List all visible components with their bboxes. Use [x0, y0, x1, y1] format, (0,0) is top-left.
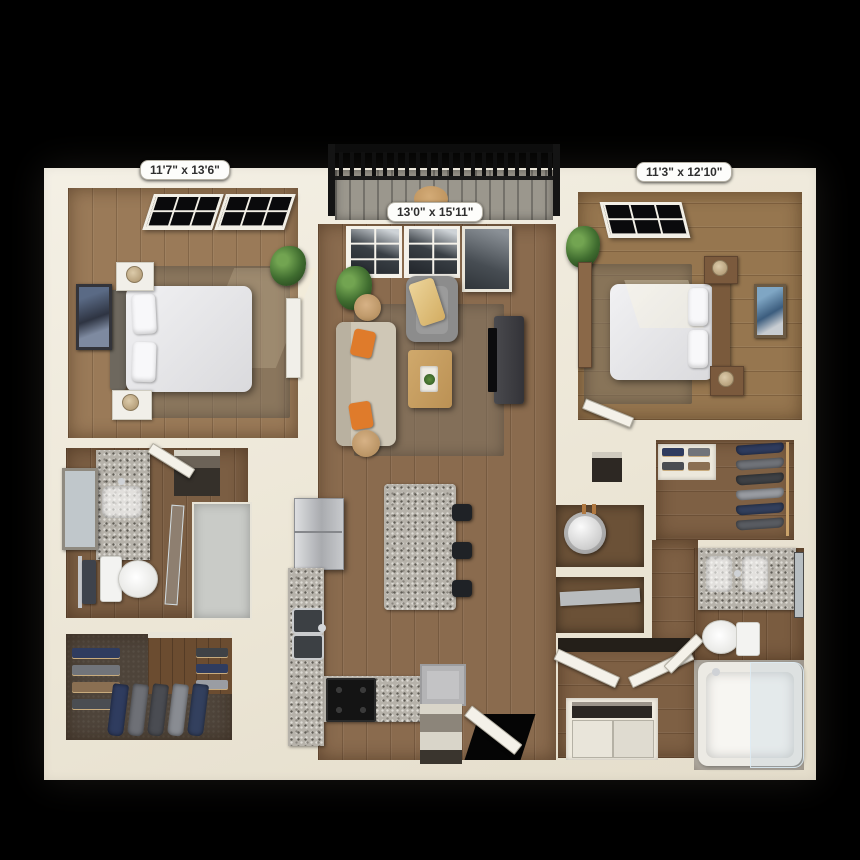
- folded-clothes: [72, 665, 120, 675]
- folded-clothes: [196, 648, 228, 657]
- sink-basin: [292, 634, 324, 660]
- vanity-mirror: [794, 552, 804, 618]
- sink-basin: [706, 556, 732, 592]
- centerpiece-plant: [424, 374, 435, 385]
- kitchen-island: [384, 484, 456, 610]
- dimension-label-living-room: 13'0" x 15'11": [387, 202, 483, 222]
- refrigerator-door-seam: [294, 531, 342, 533]
- side-table: [354, 294, 381, 321]
- sliding-door-panel: [613, 720, 654, 758]
- bed-right-pillow-1: [688, 288, 708, 326]
- living-window-2: [404, 226, 460, 278]
- pantry-door: [420, 664, 466, 706]
- folded-clothes: [72, 648, 120, 658]
- tub-glass-panel: [750, 662, 804, 768]
- faucet: [118, 478, 125, 485]
- bed-left-pillow-1: [131, 293, 157, 334]
- folded-clothes: [662, 448, 684, 456]
- throw-pillow-orange: [348, 400, 374, 430]
- balcony-balusters: [328, 152, 560, 178]
- television: [488, 328, 497, 392]
- dimension-label-bedroom-right: 11'3" x 12'10": [636, 162, 732, 182]
- hallway-connector-floor: [652, 540, 698, 646]
- bar-stool: [452, 542, 472, 559]
- folded-clothes: [196, 664, 228, 673]
- balcony-post-left: [328, 144, 335, 216]
- bed-left-pillow-2: [131, 342, 156, 383]
- towel: [82, 560, 96, 604]
- side-table: [352, 430, 380, 457]
- tv-console: [494, 316, 524, 404]
- water-heater: [564, 512, 606, 554]
- dresser: [286, 298, 301, 378]
- balcony-post-right: [553, 144, 560, 216]
- water-heater-pipe: [592, 504, 596, 514]
- table-lamp: [718, 371, 734, 387]
- bed-right-pillow-2: [688, 330, 708, 368]
- pantry-shelves: [420, 704, 462, 764]
- sliding-door-panel: [572, 720, 613, 758]
- toilet-bowl: [118, 560, 158, 598]
- bar-stool: [452, 504, 472, 521]
- refrigerator: [294, 498, 344, 570]
- dimension-label-bedroom-left: 11'7" x 13'6": [140, 160, 230, 180]
- sink-basin: [102, 486, 142, 518]
- stove: [326, 678, 376, 722]
- table-lamp: [122, 394, 139, 411]
- bed-left-headboard: [110, 290, 126, 390]
- vanity-mirror: [62, 468, 98, 550]
- storage-niche: [592, 452, 622, 482]
- sink-basin: [742, 556, 768, 592]
- bedroom-left-window-1: [142, 194, 224, 230]
- laundry-closet-opening: [558, 638, 690, 652]
- table-lamp: [126, 266, 143, 283]
- sliding-closet-shelf: [572, 702, 652, 718]
- tub-faucet: [712, 668, 720, 676]
- water-heater-pipe: [582, 504, 586, 514]
- floor-plan-render: 11'7" x 13'6" 13'0" x 15'11" 11'3" x 12'…: [0, 0, 860, 860]
- faucet: [734, 570, 741, 577]
- bedroom-left-window-2: [214, 194, 296, 230]
- bar-stool: [452, 580, 472, 597]
- bedroom-right-window: [600, 202, 691, 238]
- toilet-tank: [736, 622, 760, 656]
- faucet: [318, 624, 326, 632]
- folded-clothes: [688, 448, 710, 456]
- wall-art: [754, 284, 786, 338]
- toilet-bowl: [702, 620, 740, 654]
- closet-rod: [786, 442, 789, 536]
- desk: [578, 262, 592, 368]
- shower-stall: [192, 502, 252, 620]
- balcony-door: [462, 226, 512, 292]
- balcony-railing-rail: [328, 176, 560, 180]
- table-lamp: [712, 260, 728, 276]
- wall-art: [76, 284, 112, 350]
- folded-clothes: [662, 462, 684, 470]
- folded-clothes: [688, 462, 710, 470]
- sofa-backrest: [336, 322, 351, 446]
